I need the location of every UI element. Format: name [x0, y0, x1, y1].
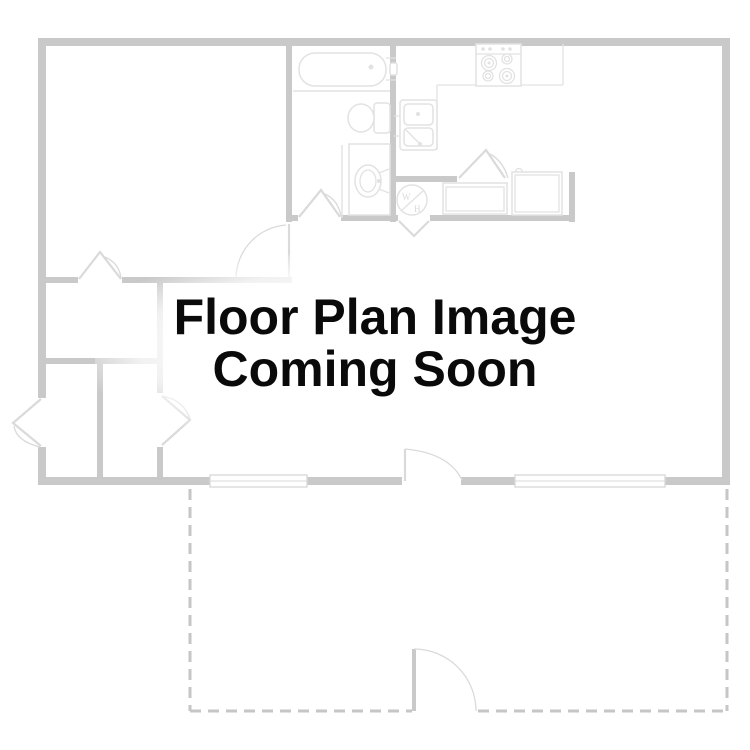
water-heater-label-w: W [402, 192, 411, 202]
hall-closet-door [162, 396, 190, 445]
patio-outline [190, 489, 727, 711]
water-heater-label-h: H [414, 204, 421, 214]
appliance-unit-left [443, 183, 507, 214]
bathtub [299, 53, 397, 86]
appliance-unit-right [512, 169, 562, 216]
exterior-side-door [13, 399, 41, 447]
windows [210, 475, 665, 487]
kitchen-sink [394, 100, 437, 150]
placeholder-text: Floor Plan Image Coming Soon [0, 291, 750, 395]
bedroom-door [236, 224, 289, 278]
placeholder-line-2: Coming Soon [0, 343, 750, 395]
floor-plan-canvas: W H Floor Plan Image Coming Soon [0, 0, 750, 750]
kitchen-door [459, 150, 508, 178]
placeholder-line-1: Floor Plan Image [0, 291, 750, 343]
water-heater-door [399, 221, 429, 236]
interior-walls [42, 42, 575, 481]
bathroom-sink [349, 144, 390, 215]
water-heater: W H [397, 185, 427, 215]
patio-entry-door [405, 449, 462, 481]
patio-gate-door [414, 649, 476, 711]
stove [476, 44, 521, 86]
toilet [348, 103, 390, 133]
closet-bifold-door [79, 252, 121, 279]
bathroom-door [299, 190, 341, 217]
